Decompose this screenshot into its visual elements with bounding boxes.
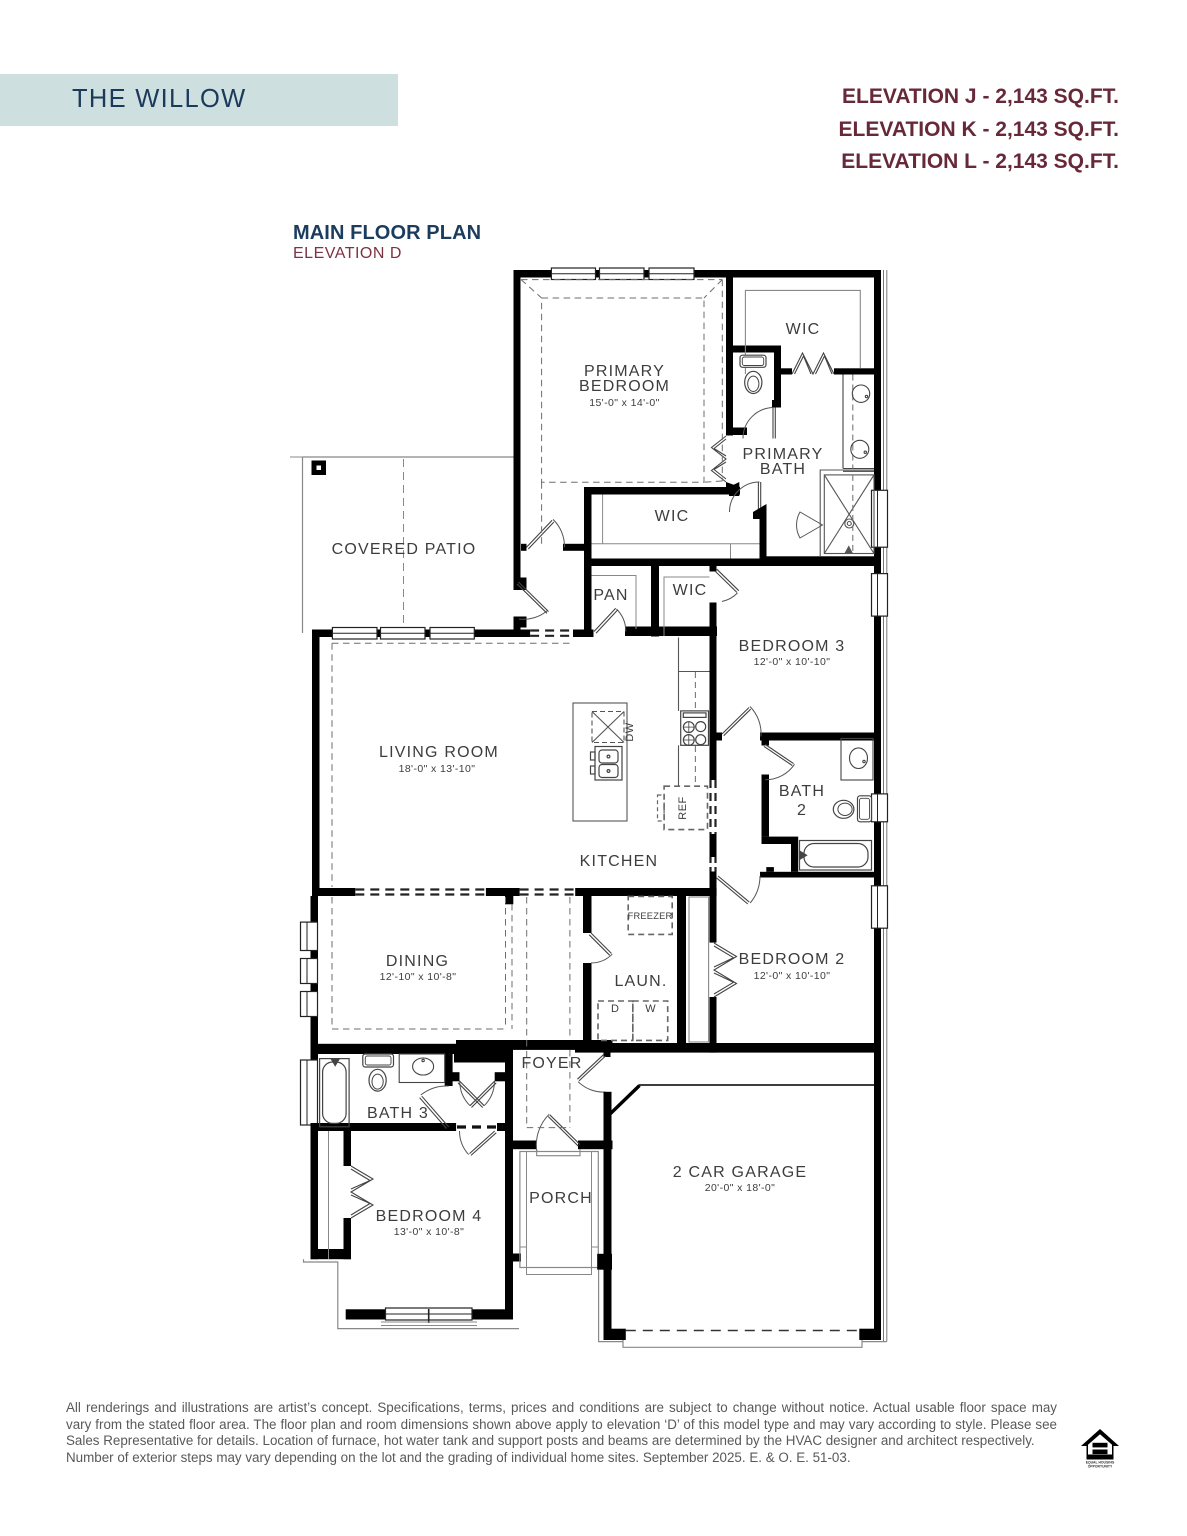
svg-text:12'-10" x 10'-8": 12'-10" x 10'-8" <box>380 971 457 983</box>
svg-text:BEDROOM 4: BEDROOM 4 <box>376 1208 483 1225</box>
svg-text:REF: REF <box>677 796 689 820</box>
svg-text:2 CAR GARAGE: 2 CAR GARAGE <box>673 1164 807 1181</box>
svg-text:BEDROOM: BEDROOM <box>579 378 670 395</box>
svg-text:KITCHEN: KITCHEN <box>580 853 659 870</box>
svg-text:13'-0" x 10'-8": 13'-0" x 10'-8" <box>394 1226 465 1238</box>
svg-text:12'-0" x 10'-10": 12'-0" x 10'-10" <box>754 656 831 668</box>
svg-text:OPPORTUNITY: OPPORTUNITY <box>1088 1465 1113 1469</box>
svg-text:20'-0" x 18'-0": 20'-0" x 18'-0" <box>705 1182 776 1194</box>
svg-text:BEDROOM 2: BEDROOM 2 <box>739 951 846 968</box>
svg-text:LAUN.: LAUN. <box>614 973 667 990</box>
svg-text:WIC: WIC <box>673 582 708 599</box>
svg-text:PAN: PAN <box>593 587 628 604</box>
svg-text:DW: DW <box>624 722 636 741</box>
svg-text:FREEZER: FREEZER <box>628 911 673 921</box>
svg-text:BEDROOM 3: BEDROOM 3 <box>739 638 846 655</box>
svg-text:PORCH: PORCH <box>529 1190 593 1207</box>
svg-text:DINING: DINING <box>386 953 449 970</box>
svg-text:WIC: WIC <box>655 508 690 525</box>
svg-text:FOYER: FOYER <box>521 1055 582 1072</box>
svg-text:W: W <box>645 1003 656 1015</box>
svg-text:COVERED PATIO: COVERED PATIO <box>332 541 477 558</box>
svg-text:2: 2 <box>797 802 807 819</box>
svg-text:LIVING ROOM: LIVING ROOM <box>379 744 499 761</box>
svg-text:WIC: WIC <box>786 321 821 338</box>
svg-text:BATH: BATH <box>760 461 806 478</box>
svg-text:BATH: BATH <box>779 783 825 800</box>
svg-text:15'-0" x 14'-0": 15'-0" x 14'-0" <box>589 397 660 409</box>
svg-text:BATH 3: BATH 3 <box>367 1105 429 1122</box>
svg-text:D: D <box>611 1003 619 1015</box>
svg-text:12'-0" x 10'-10": 12'-0" x 10'-10" <box>754 970 831 982</box>
svg-text:18'-0" x 13'-10": 18'-0" x 13'-10" <box>399 763 476 775</box>
